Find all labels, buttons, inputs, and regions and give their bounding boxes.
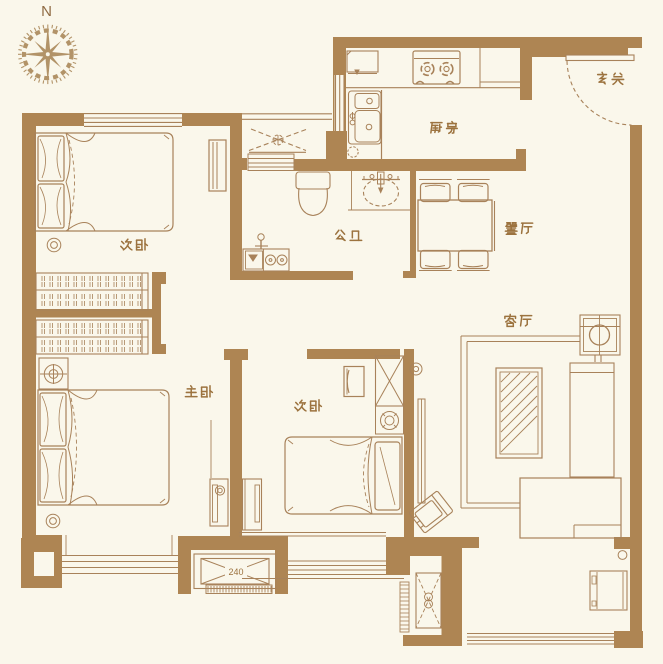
svg-text:240: 240 xyxy=(228,567,243,577)
svg-text:N: N xyxy=(41,3,52,20)
